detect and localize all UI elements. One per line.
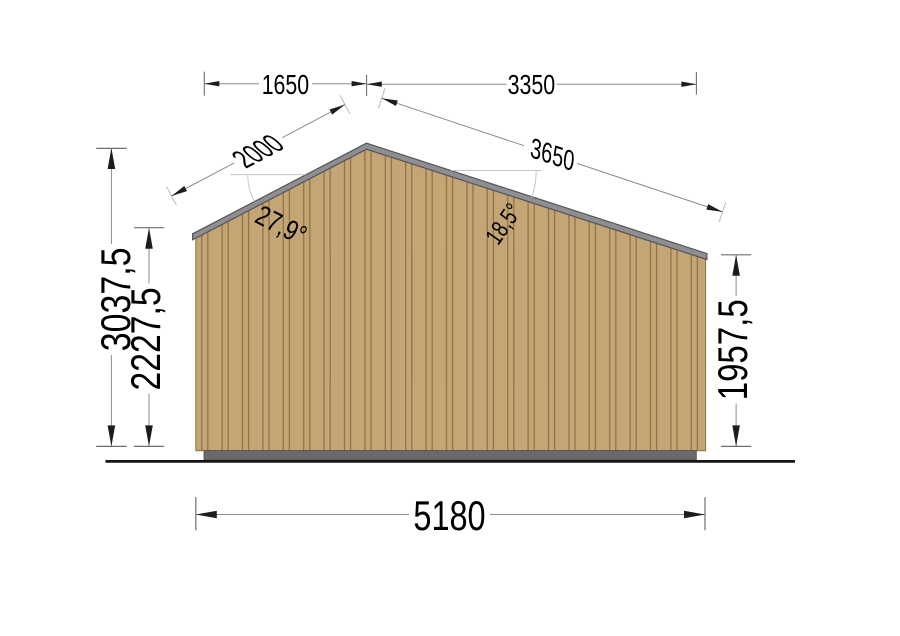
svg-text:3350: 3350 [508, 69, 556, 100]
svg-text:1650: 1650 [262, 69, 309, 100]
svg-text:5180: 5180 [413, 492, 485, 539]
svg-text:2227,5: 2227,5 [122, 287, 169, 390]
svg-text:1957,5: 1957,5 [709, 299, 756, 400]
